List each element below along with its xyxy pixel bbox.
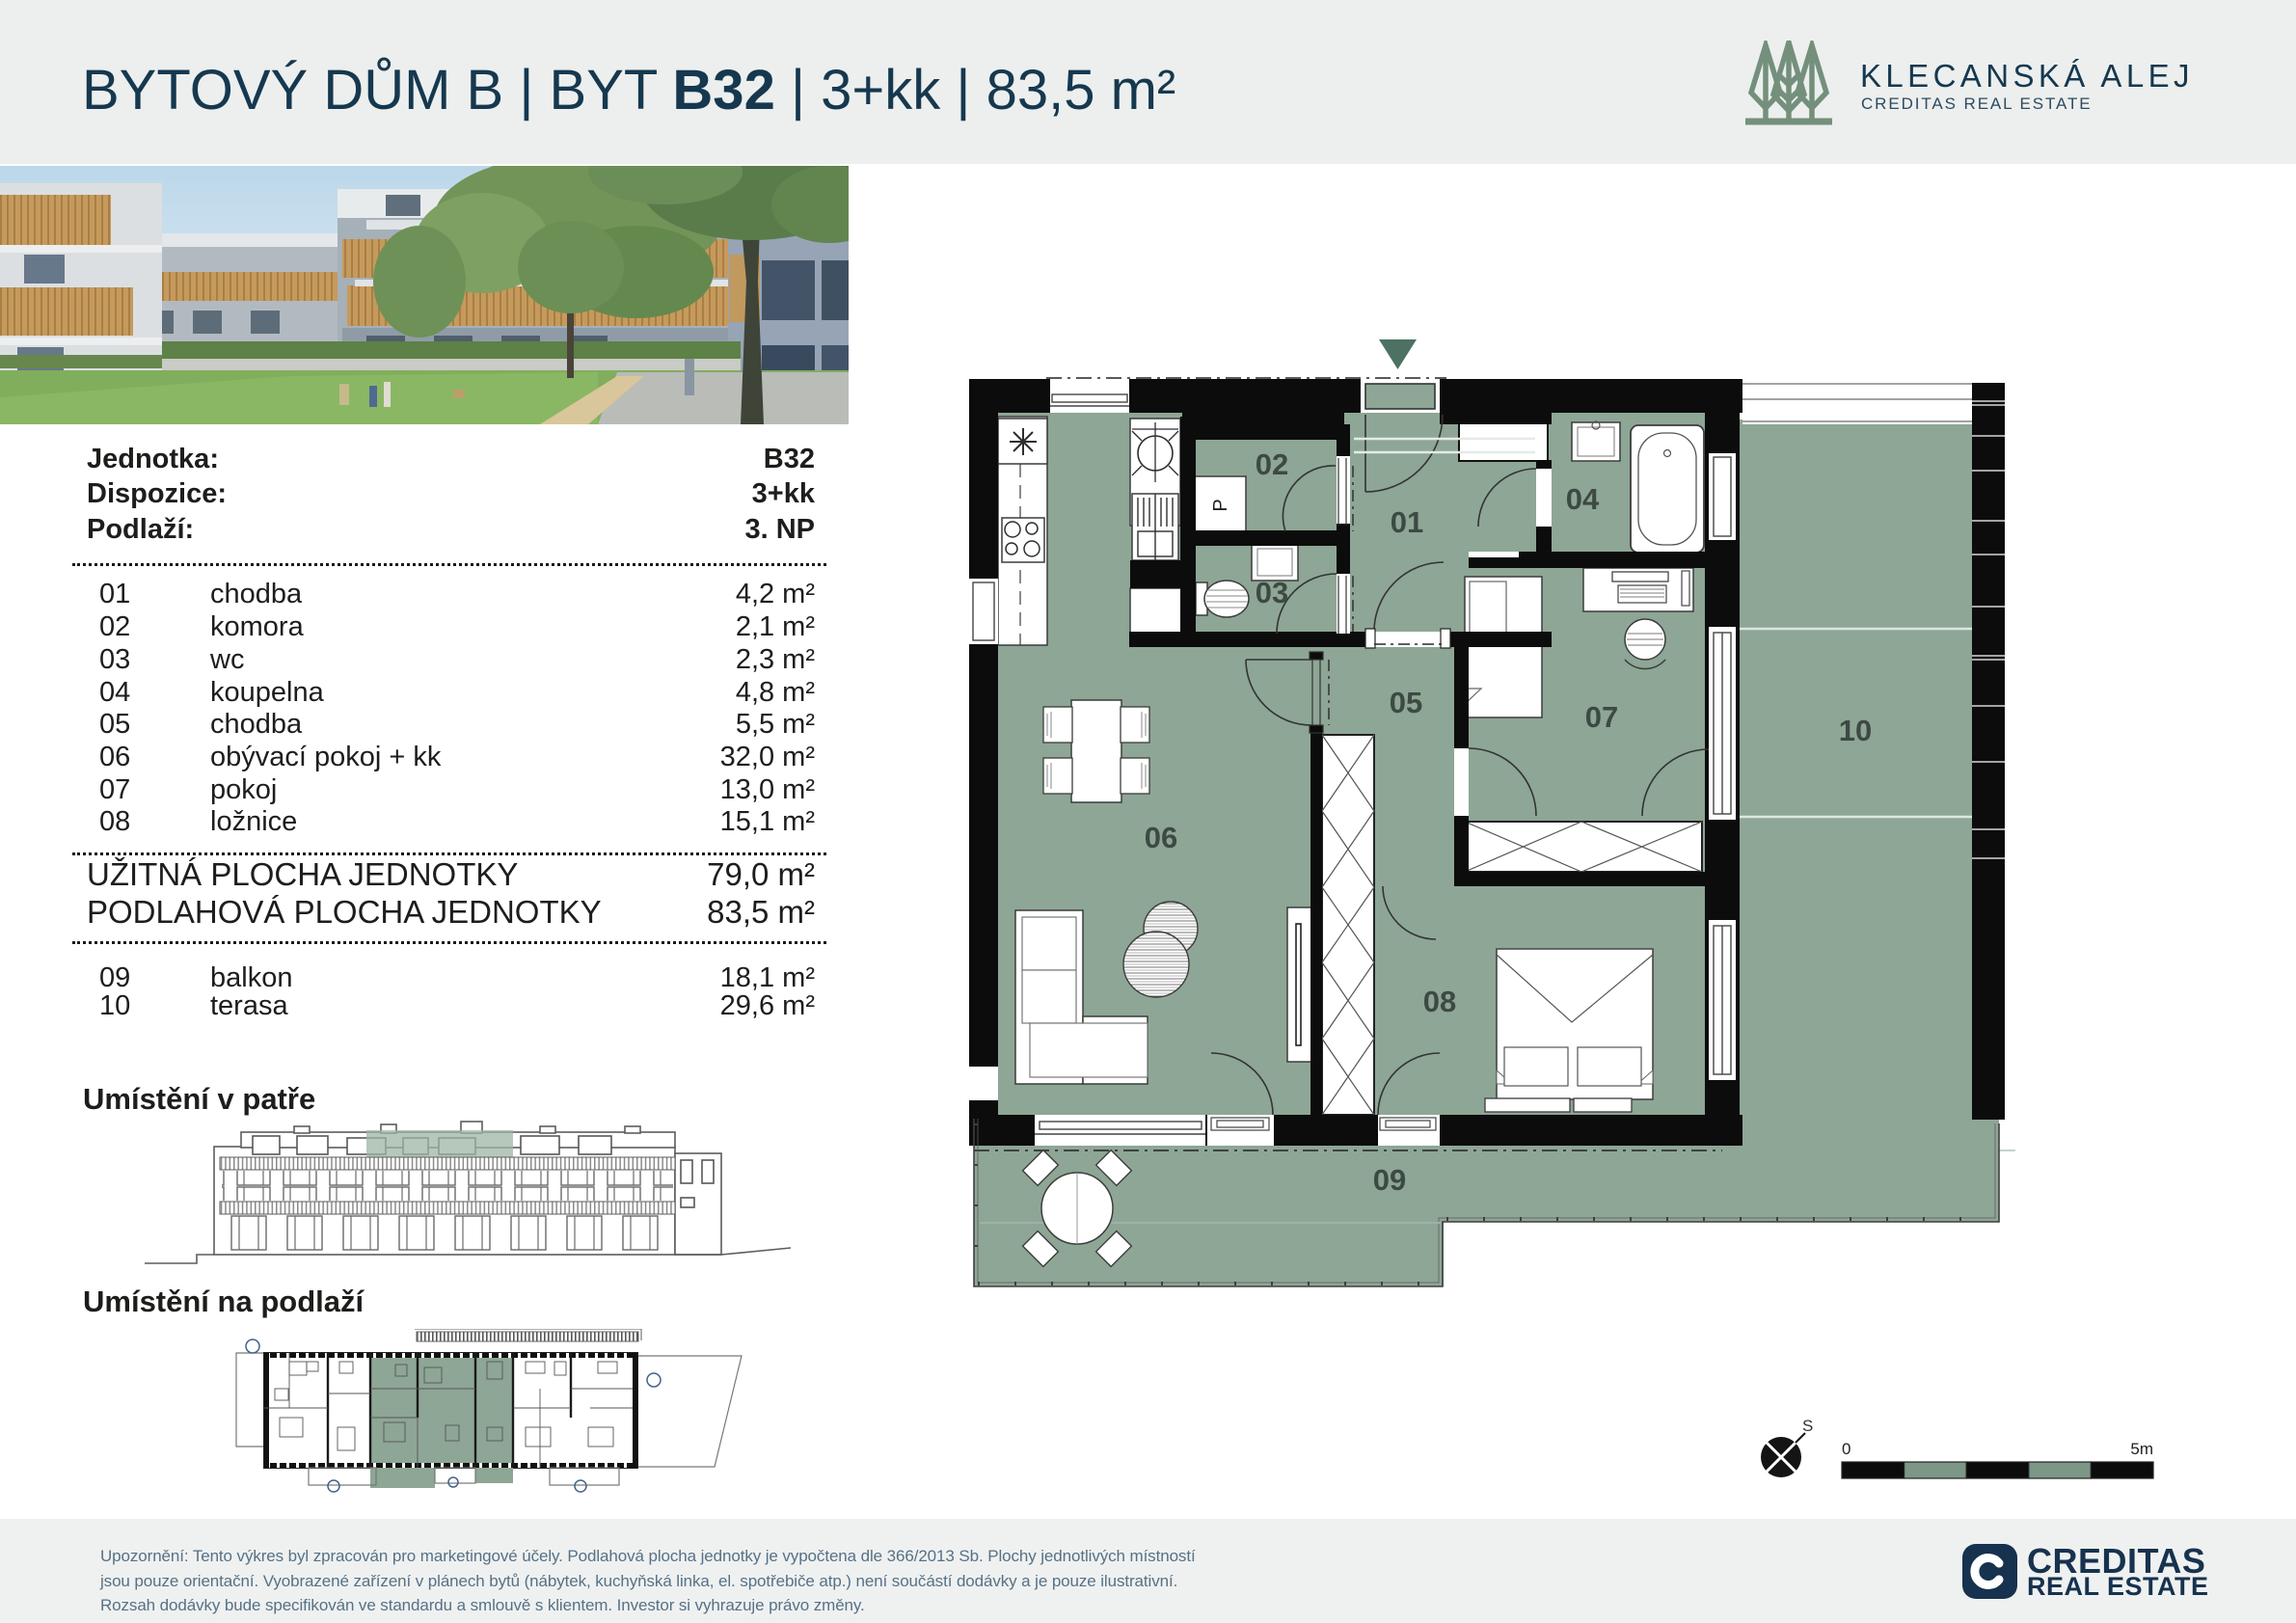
- svg-text:04: 04: [1566, 482, 1600, 516]
- svg-text:05: 05: [1390, 686, 1422, 719]
- svg-text:01: 01: [1391, 505, 1423, 539]
- svg-text:0: 0: [1842, 1440, 1850, 1458]
- svg-text:06: 06: [1145, 821, 1177, 854]
- svg-text:5m: 5m: [2130, 1440, 2153, 1458]
- svg-text:S: S: [1802, 1417, 1813, 1435]
- svg-text:P: P: [1210, 499, 1231, 511]
- svg-text:07: 07: [1585, 700, 1618, 734]
- svg-text:09: 09: [1373, 1163, 1406, 1197]
- svg-text:02: 02: [1256, 447, 1288, 481]
- svg-text:10: 10: [1839, 714, 1872, 747]
- svg-text:08: 08: [1423, 985, 1456, 1018]
- svg-text:03: 03: [1256, 576, 1288, 609]
